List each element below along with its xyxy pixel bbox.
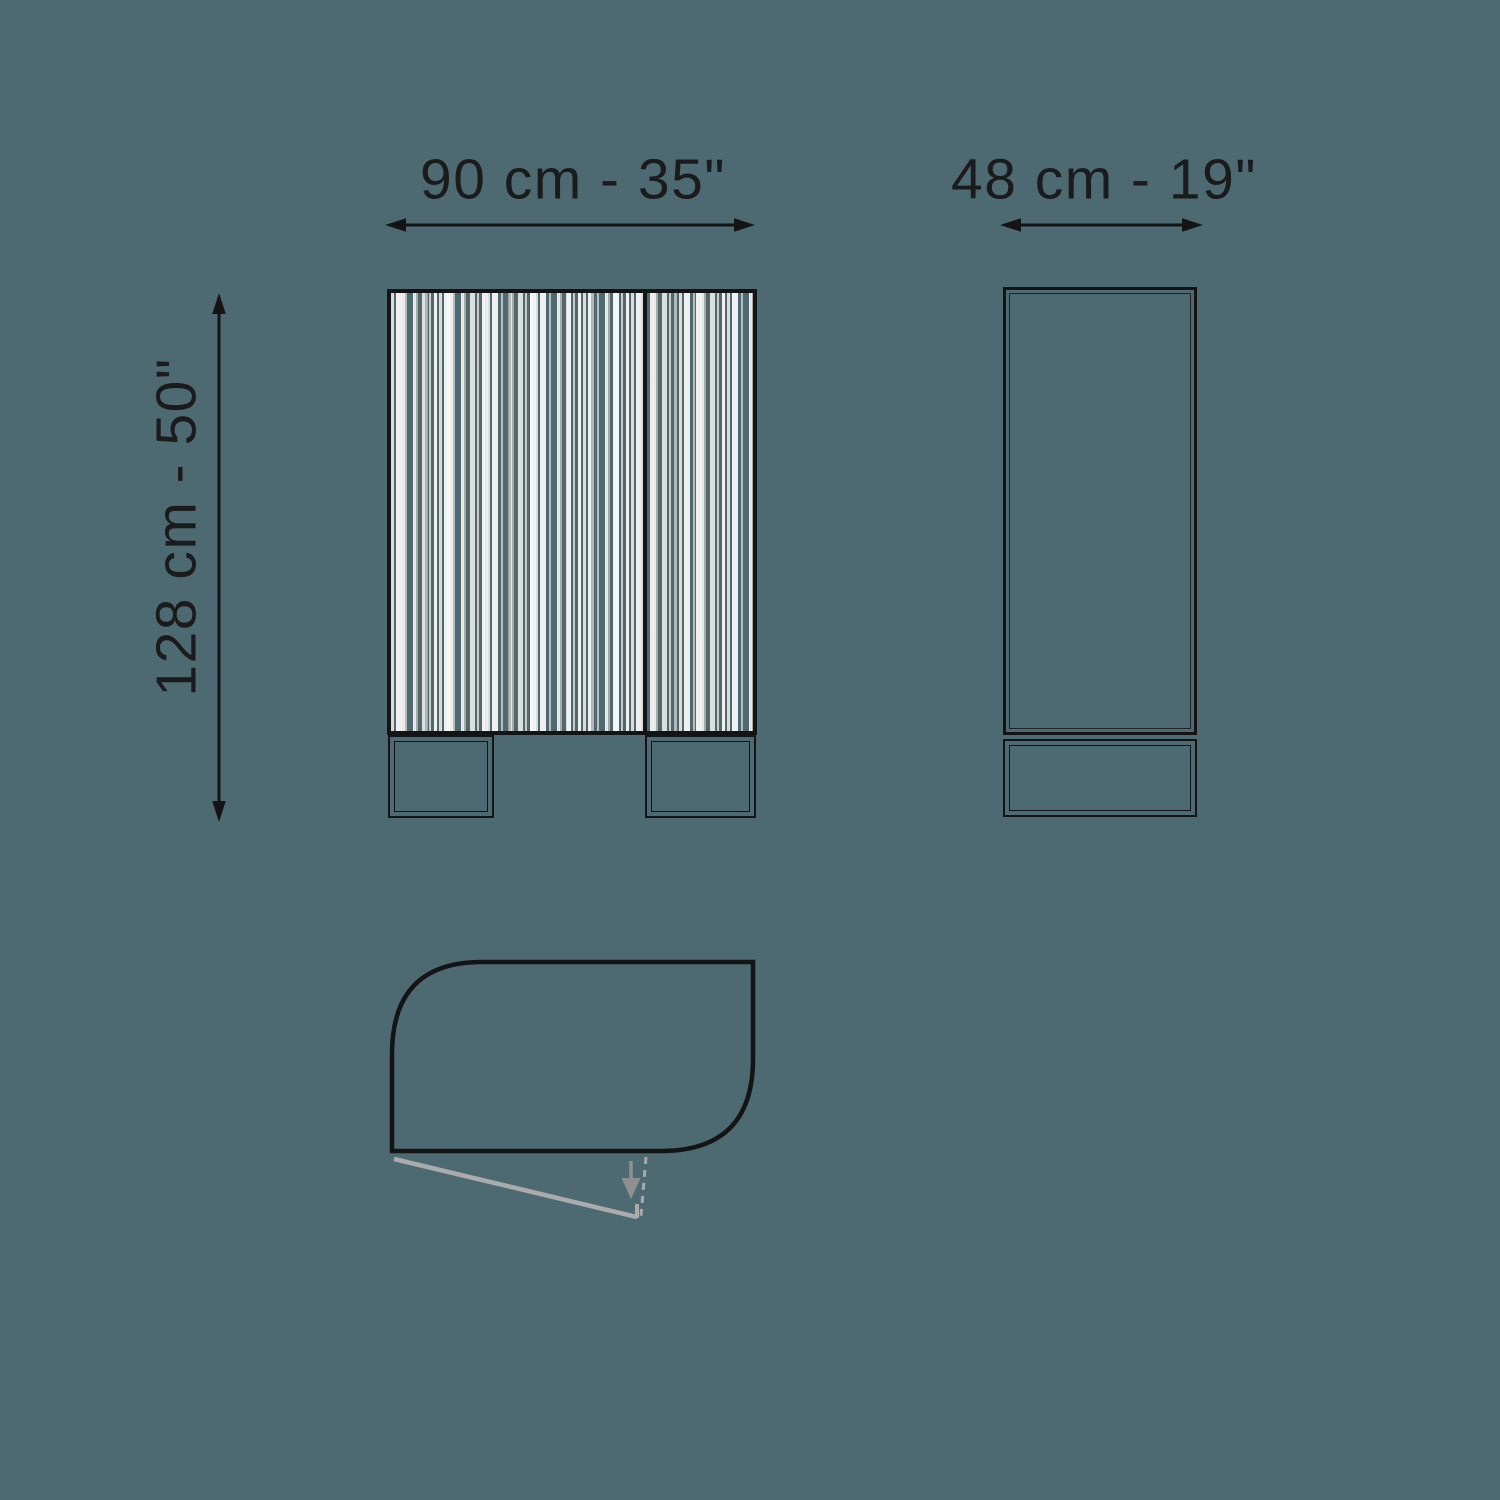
technical-drawing-canvas: 90 cm - 35" 48 cm - 19" 128 cm - 50" [0, 0, 1500, 1500]
depth-dimension-arrow [1000, 218, 1203, 232]
line-art-overlay [0, 0, 1500, 1500]
door-swing-line [394, 1159, 637, 1218]
height-dimension-arrow [212, 293, 226, 822]
top-view-outline [392, 962, 753, 1151]
door-swing-dashed-line [641, 1157, 646, 1216]
width-dimension-arrow [385, 218, 755, 232]
door-swing-direction-arrow [622, 1161, 641, 1199]
